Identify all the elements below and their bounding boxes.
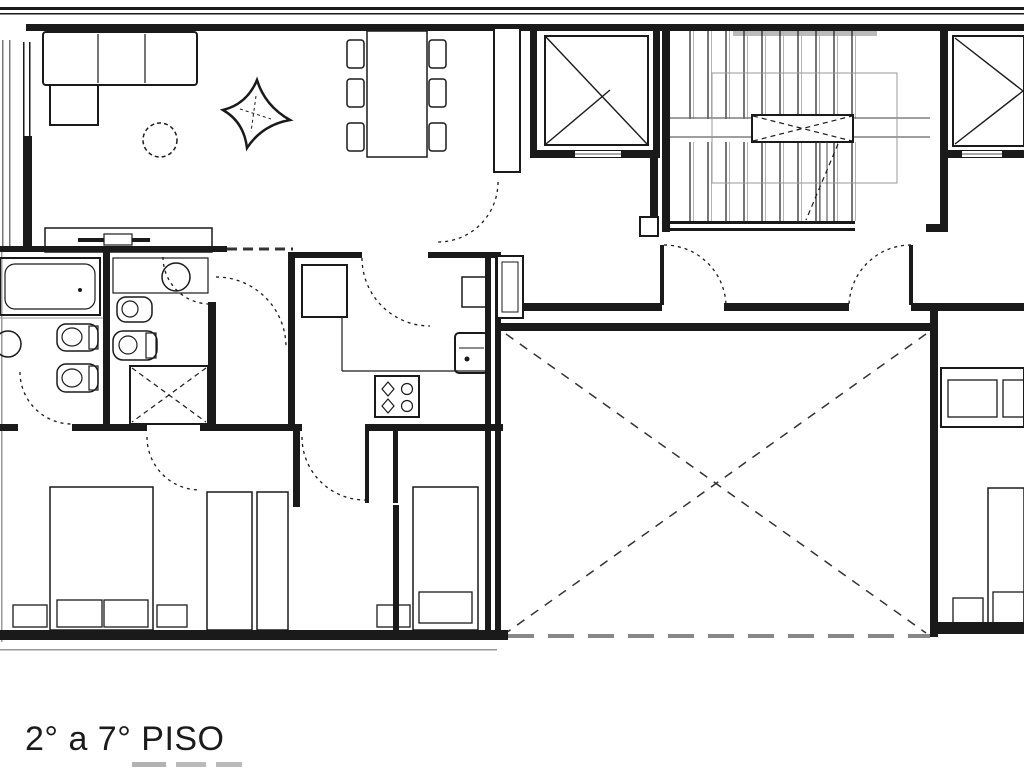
kitchen-top-wall-left — [288, 252, 362, 258]
burner-circle-2 — [402, 401, 413, 412]
bath-divider-wall — [103, 252, 110, 424]
balcony-edge-inner — [9, 40, 11, 252]
cropped-text-fragment-1 — [132, 762, 166, 767]
fridge — [302, 265, 347, 317]
elevator2-hall-wall — [940, 160, 948, 224]
cropped-text-fragment-2 — [176, 762, 206, 767]
burner-diamond-1 — [382, 382, 394, 396]
void-right-wall — [930, 311, 938, 637]
elevator1-symbol-1 — [546, 37, 647, 144]
bedroom-divider-wall — [293, 431, 300, 507]
elevator-hall-wall — [650, 158, 658, 218]
sink-drain — [465, 357, 470, 362]
bedrooms-top-wall-4 — [365, 424, 503, 431]
bed1-pillow-2 — [104, 600, 148, 627]
entry-door-leaf-right — [909, 245, 913, 305]
star-inner-line-2 — [251, 96, 256, 132]
star-inner-line-1 — [240, 109, 271, 119]
bed2-pillow — [419, 592, 472, 623]
bedroom2-door-leaf — [365, 431, 369, 503]
dining-chair-r2 — [429, 79, 446, 107]
wardrobe-panel-1 — [207, 492, 252, 630]
coffee-table-star — [223, 80, 290, 148]
bath1-sink — [0, 331, 21, 357]
cropped-text-fragment-3 — [216, 762, 242, 767]
burner-circle-1 — [402, 384, 413, 395]
bath1-bidet-body — [57, 324, 98, 351]
elevator2-symbol-2 — [955, 91, 1023, 144]
stair-left-wall — [662, 24, 670, 232]
rightapt-bed-pillow — [993, 592, 1024, 623]
palier-bottom-wall-2 — [724, 303, 849, 311]
bath2-toilet-bowl — [119, 336, 137, 354]
elevator2-cab — [953, 36, 1024, 146]
wardrobe-panel-2 — [257, 492, 288, 630]
rightapt-nightstand — [953, 598, 983, 623]
floor-plan-canvas: 2° a 7° PISO — [0, 0, 1024, 768]
bedroom2-left-wall-upper — [393, 431, 398, 503]
stove — [375, 376, 419, 417]
stair-treads-upper — [690, 31, 856, 119]
entry-door-arc-left — [664, 245, 726, 307]
rightapt-closet-outer — [941, 368, 1024, 427]
bed1-nightstand-right — [157, 605, 187, 627]
floor-label: 2° a 7° PISO — [25, 720, 225, 759]
dining-chair-r3 — [429, 123, 446, 151]
top-boundary-inner — [0, 13, 1024, 15]
balcony-edge-outer — [2, 40, 4, 252]
bath1-bidet-bowl — [62, 328, 82, 346]
hall-door-arc — [216, 277, 286, 347]
entry-door-leaf-left — [660, 245, 664, 305]
bath2-toilet-tank — [146, 333, 156, 358]
elevator2-hall-foot — [926, 224, 948, 232]
kitchen-sink — [455, 333, 488, 373]
column-duct — [494, 28, 520, 172]
elevator1-left-wall — [530, 24, 537, 158]
side-table-round — [143, 123, 177, 157]
bed1-pillow-1 — [57, 600, 102, 627]
burner-diamond-2 — [382, 399, 394, 413]
dining-chair-l1 — [347, 40, 364, 68]
bedroom1-door-arc — [147, 437, 200, 490]
dining-chair-r1 — [429, 40, 446, 68]
bathtub-drain — [78, 288, 82, 292]
void-left-wall-outer — [485, 252, 491, 637]
stair-landing-line-2 — [662, 228, 855, 231]
rightapt-closet-panel-2 — [1003, 380, 1024, 417]
living-foyer-door-arc — [438, 182, 498, 242]
dining-chair-l3 — [347, 123, 364, 151]
foyer-closet-outer — [497, 256, 523, 318]
bathtub-inner — [5, 264, 95, 309]
bottom-outer-line — [0, 649, 497, 651]
elevator2-symbol-1 — [955, 38, 1023, 91]
sofa-body — [43, 32, 197, 85]
bed2 — [413, 487, 478, 630]
apartment-bottom-wall — [0, 630, 508, 640]
stair-treads-lower — [690, 142, 856, 221]
bedrooms-top-wall-3 — [200, 424, 302, 431]
entry-door-arc-right — [849, 245, 911, 307]
elevator2-left-wall — [940, 24, 948, 160]
bedroom2-door-arc — [302, 437, 365, 500]
bath2-sink — [162, 263, 190, 291]
bath1-toilet-body — [57, 364, 98, 392]
dining-table — [367, 31, 427, 157]
bath2-right-wall — [208, 302, 216, 424]
palier-bottom-wall-3 — [911, 303, 1024, 311]
bath1-toilet-bowl — [62, 369, 82, 387]
bath2-bidet-bowl — [122, 301, 138, 317]
bedroom2-left-wall — [393, 505, 399, 630]
kitchen-top-wall-right — [428, 252, 497, 258]
living-left-wall — [23, 136, 32, 252]
living-window-inner — [29, 42, 31, 138]
bath1-door-arc — [20, 372, 72, 424]
living-bottom-wall — [0, 246, 227, 252]
elevator1-symbol-2 — [546, 90, 610, 144]
dining-chair-l2 — [347, 79, 364, 107]
elevator1-right-wall — [653, 24, 660, 158]
bedrooms-top-wall-2 — [72, 424, 147, 431]
floor-plan-drawing — [0, 0, 1024, 768]
tv-center — [104, 234, 132, 245]
living-window-outer — [23, 42, 25, 138]
bath2-vanity — [113, 258, 208, 293]
bathtub-outer — [0, 258, 100, 315]
bed1-nightstand-left — [13, 605, 47, 627]
void-top-wall — [501, 323, 937, 331]
duct-box — [640, 217, 658, 236]
top-boundary-outer — [0, 7, 1024, 10]
stair-mid-box — [752, 115, 853, 142]
kitchen-cabinet — [462, 277, 487, 307]
rightapt-closet-panel-1 — [948, 380, 997, 417]
bedrooms-top-wall-1 — [0, 424, 18, 431]
stair-landing-line-1 — [662, 221, 855, 224]
kitchen-left-wall — [288, 252, 295, 431]
building-top-wall — [26, 24, 1024, 31]
left-wall-lower — [1, 252, 3, 642]
kitchen-door-arc — [362, 258, 430, 326]
rightapt-bottom-wall — [938, 622, 1024, 634]
sofa-chaise — [50, 85, 98, 125]
stair-up-dash — [806, 144, 838, 220]
